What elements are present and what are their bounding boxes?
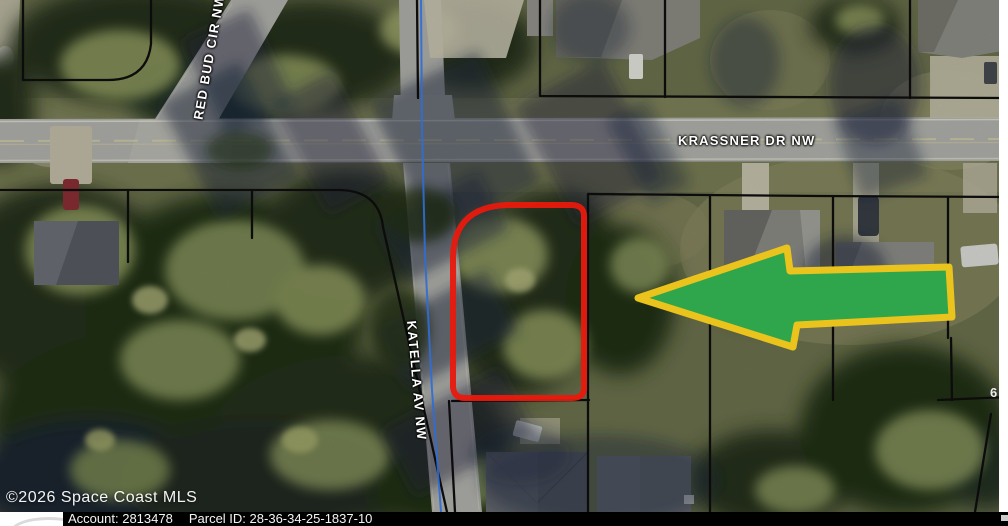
copyright-watermark: ©2026 Space Coast MLS xyxy=(6,489,197,507)
right-edge-strip xyxy=(999,0,1008,512)
street-label-krassner: KRASSNER DR NW xyxy=(678,133,815,148)
aerial-map: 6 KRASSNER DR NW RED BUD CIR NW KATELLA … xyxy=(0,0,1008,512)
footer-text: Account: 2813478Parcel ID: 28-36-34-25-1… xyxy=(63,512,372,526)
aerial-map-graphics: 6 xyxy=(0,0,1008,512)
photo-grain xyxy=(0,0,1008,512)
mls-map-screenshot: 6 KRASSNER DR NW RED BUD CIR NW KATELLA … xyxy=(0,0,1008,526)
footer-logo-corner xyxy=(0,512,63,526)
corner-notch xyxy=(1001,515,1008,521)
account-value: 2813478 xyxy=(122,511,173,526)
footer-bar: Account: 2813478Parcel ID: 28-36-34-25-1… xyxy=(0,512,1008,526)
account-label: Account: xyxy=(68,511,119,526)
parcel-id-label: Parcel ID: xyxy=(189,511,246,526)
house-number-partial: 6 xyxy=(990,385,997,400)
logo-swoosh xyxy=(10,517,63,526)
parcel-id-value: 28-36-34-25-1837-10 xyxy=(250,511,373,526)
